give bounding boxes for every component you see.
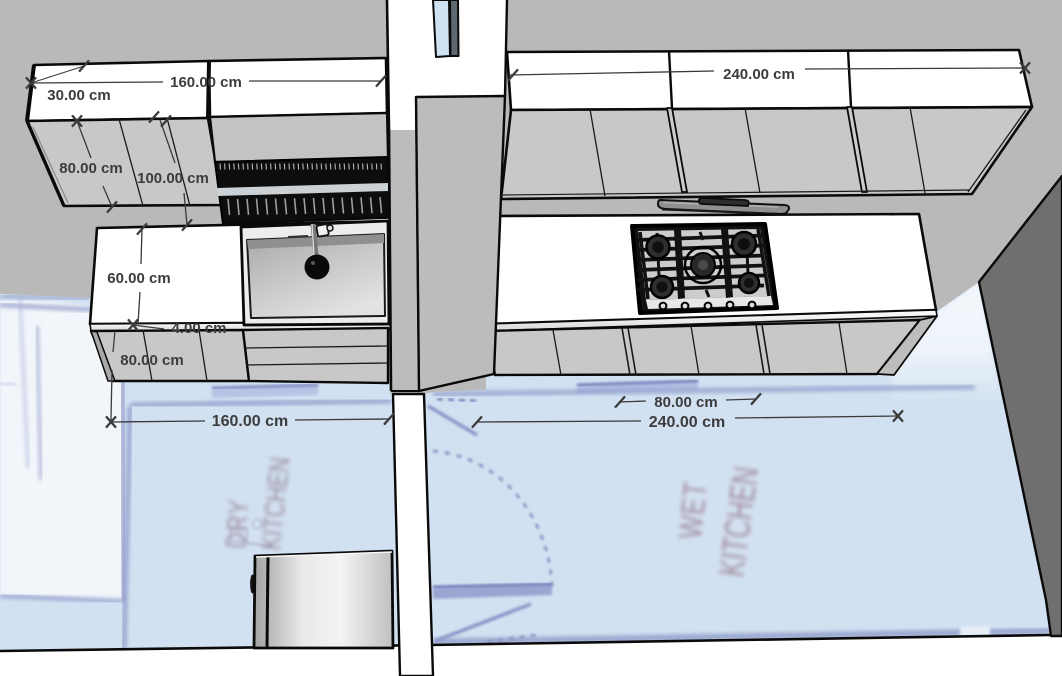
svg-text:60.00 cm: 60.00 cm bbox=[107, 270, 170, 287]
svg-text:240.00 cm: 240.00 cm bbox=[649, 414, 726, 431]
svg-text:4.00 cm: 4.00 cm bbox=[171, 320, 226, 337]
svg-text:80.00 cm: 80.00 cm bbox=[120, 352, 183, 369]
svg-text:80.00 cm: 80.00 cm bbox=[654, 394, 717, 411]
svg-text:80.00 cm: 80.00 cm bbox=[59, 160, 122, 177]
svg-text:DRY: DRY bbox=[221, 498, 255, 549]
svg-text:100.00 cm: 100.00 cm bbox=[137, 170, 209, 187]
svg-text:240.00 cm: 240.00 cm bbox=[723, 66, 795, 83]
svg-text:160.00 cm: 160.00 cm bbox=[170, 74, 242, 91]
svg-text:160.00 cm: 160.00 cm bbox=[212, 413, 289, 430]
svg-text:30.00 cm: 30.00 cm bbox=[47, 87, 110, 104]
svg-text:WET: WET bbox=[672, 479, 715, 541]
